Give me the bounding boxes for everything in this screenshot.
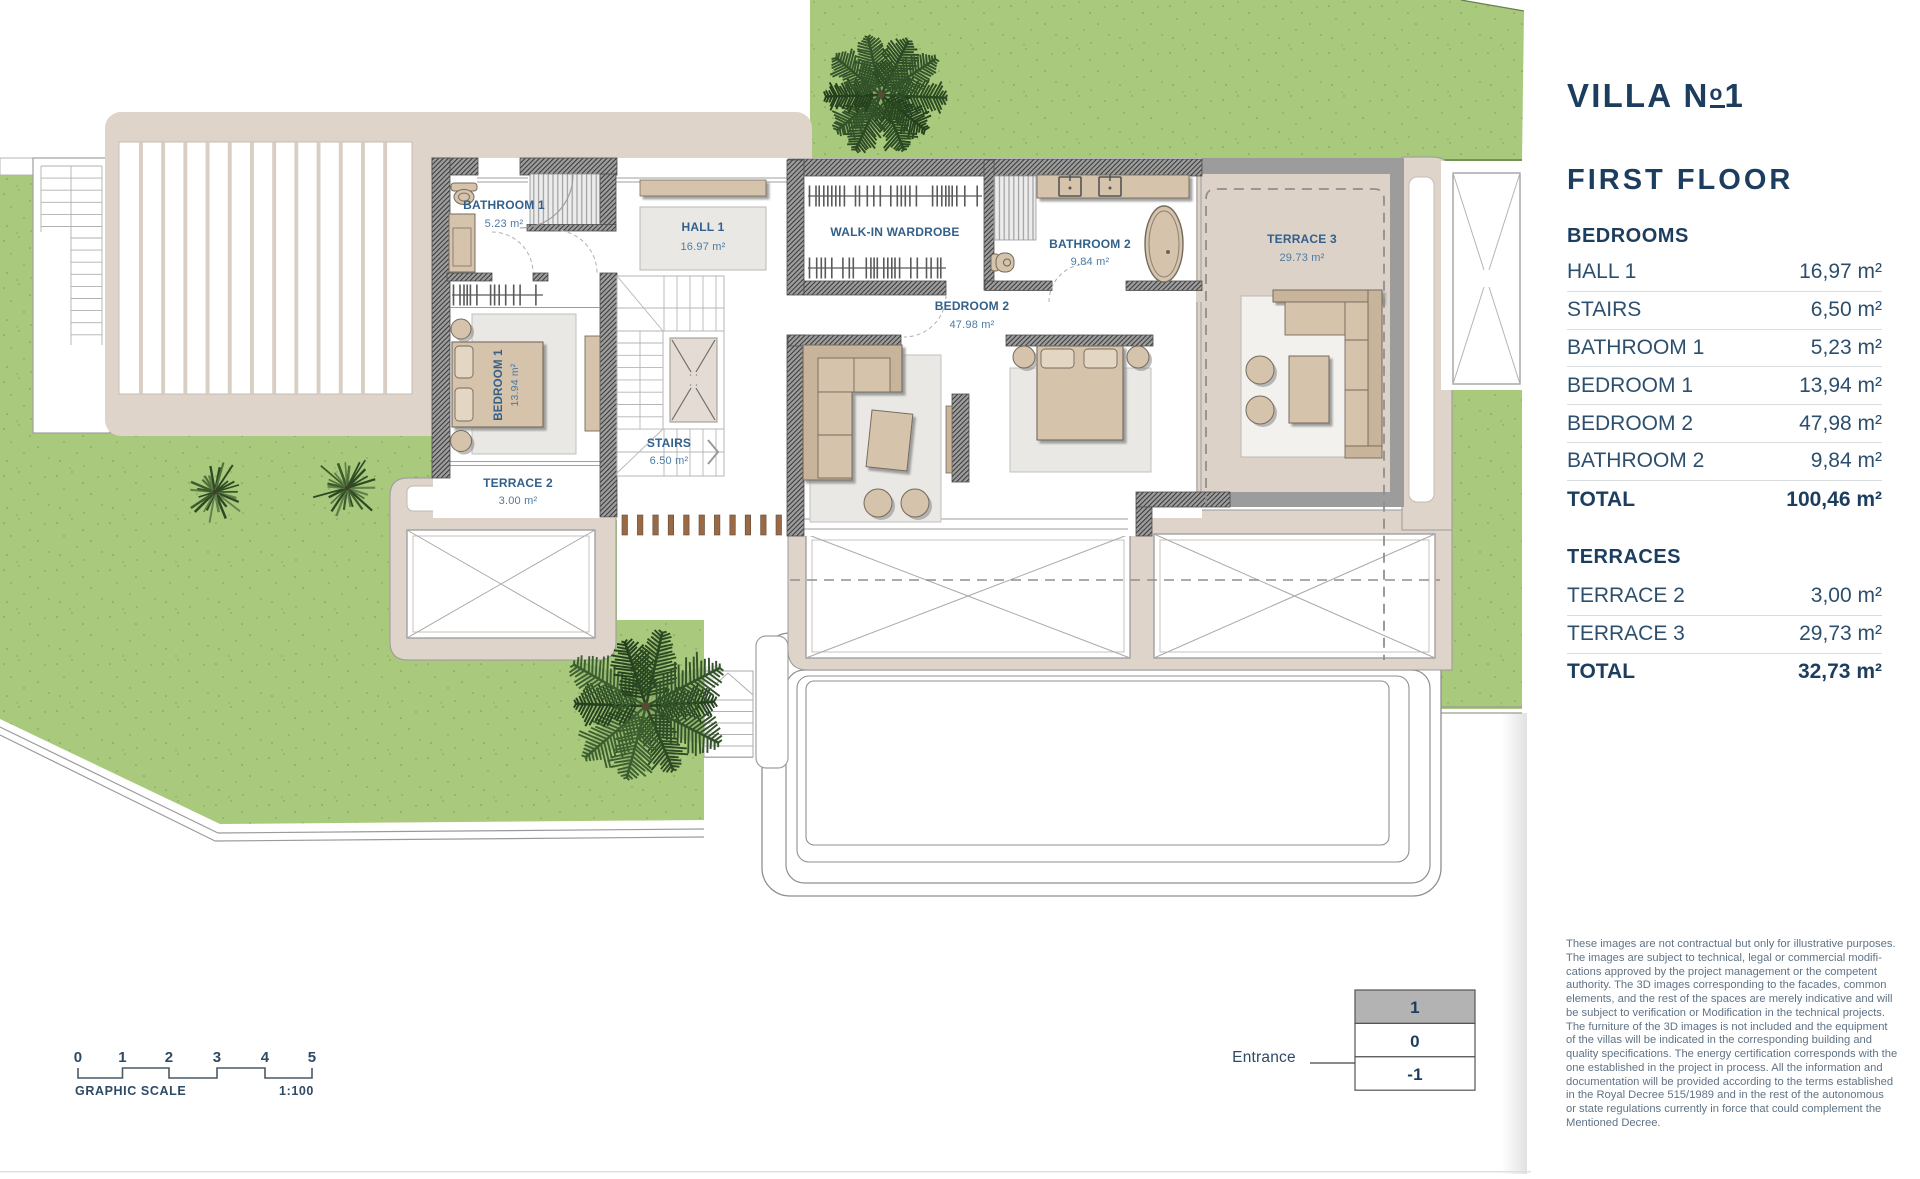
svg-text:Entrance: Entrance <box>1232 1049 1296 1066</box>
svg-text:1: 1 <box>1410 998 1420 1017</box>
svg-text:WALK-IN WARDROBE: WALK-IN WARDROBE <box>830 225 959 239</box>
svg-text:5.23 m²: 5.23 m² <box>485 218 524 230</box>
svg-text:2: 2 <box>165 1049 174 1066</box>
svg-text:TERRACE 3: TERRACE 3 <box>1267 232 1337 246</box>
svg-text:TERRACE 2: TERRACE 2 <box>483 476 553 490</box>
svg-text:1: 1 <box>118 1049 127 1066</box>
svg-text:HALL 1: HALL 1 <box>682 220 725 234</box>
svg-text:0: 0 <box>1410 1032 1420 1051</box>
svg-text:1:100: 1:100 <box>279 1084 314 1098</box>
svg-text:29.73 m²: 29.73 m² <box>1279 252 1324 264</box>
svg-text:5: 5 <box>308 1049 317 1066</box>
svg-text:GRAPHIC SCALE: GRAPHIC SCALE <box>75 1084 186 1098</box>
svg-text:6.50 m²: 6.50 m² <box>650 455 689 467</box>
svg-text:3: 3 <box>213 1049 222 1066</box>
svg-text:4: 4 <box>261 1049 270 1066</box>
svg-text:9.84 m²: 9.84 m² <box>1071 256 1110 268</box>
svg-text:BATHROOM 1: BATHROOM 1 <box>463 198 545 212</box>
svg-text:STAIRS: STAIRS <box>647 436 691 450</box>
svg-text:47.98 m²: 47.98 m² <box>949 319 994 331</box>
svg-text:16.97 m²: 16.97 m² <box>680 241 725 253</box>
svg-text:-1: -1 <box>1407 1065 1423 1084</box>
svg-text:BATHROOM 2: BATHROOM 2 <box>1049 237 1131 251</box>
svg-text:13.94 m²: 13.94 m² <box>509 363 521 406</box>
svg-text:BEDROOM 1: BEDROOM 1 <box>493 349 505 421</box>
svg-text:3.00 m²: 3.00 m² <box>499 495 538 507</box>
svg-text:BEDROOM 2: BEDROOM 2 <box>935 299 1010 313</box>
svg-text:0: 0 <box>74 1049 83 1066</box>
